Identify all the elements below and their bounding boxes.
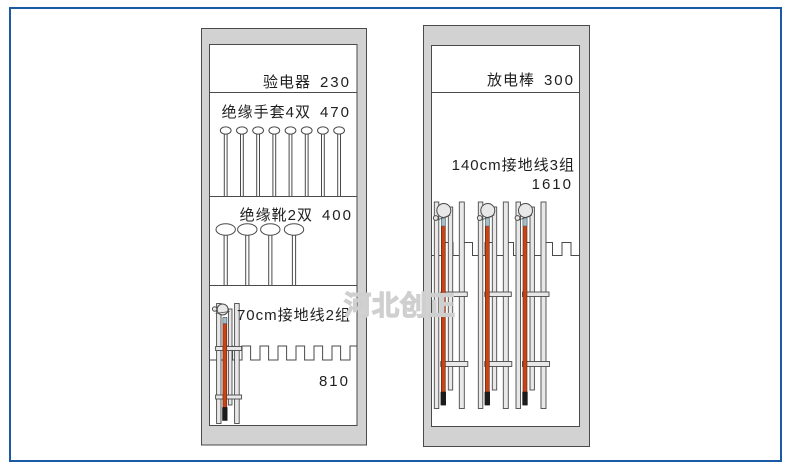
right-grounding-assembly-2 (477, 202, 511, 409)
right-section-ground-wire-value: 1610 (432, 176, 573, 193)
label-text: 绝缘靴2双 (240, 207, 313, 224)
label-value: 1610 (532, 176, 573, 193)
label-value: 470 (320, 104, 351, 121)
label-text: 绝缘手套4双 (222, 104, 311, 121)
cabinet-line-drawing (0, 0, 790, 469)
left-section-electroscope-label: 验电器230 (210, 71, 351, 92)
label-value: 400 (322, 207, 353, 224)
label-text: 验电器 (263, 74, 311, 91)
watermark: 河北创正 (344, 284, 456, 323)
right-section-ground-wire-label: 140cm接地线3组 (432, 154, 575, 175)
diagram-canvas: 验电器230 绝缘手套4双470 绝缘靴2双400 70cm接地线2组 810 … (0, 0, 790, 469)
label-text: 140cm接地线3组 (452, 157, 575, 174)
left-section-ground-wire-label: 70cm接地线2组 (210, 304, 351, 325)
left-section-gloves-label: 绝缘手套4双470 (210, 101, 351, 122)
right-section-discharge-rod-label: 放电棒300 (432, 69, 575, 90)
left-section-ground-wire-value: 810 (210, 373, 350, 390)
label-text: 放电棒 (487, 72, 535, 89)
left-section-boots-label: 绝缘靴2双400 (210, 204, 353, 225)
label-text: 70cm接地线2组 (237, 307, 351, 324)
label-value: 230 (320, 74, 351, 91)
right-grounding-assembly-3 (515, 202, 549, 409)
label-value: 810 (319, 373, 350, 390)
label-value: 300 (544, 72, 575, 89)
